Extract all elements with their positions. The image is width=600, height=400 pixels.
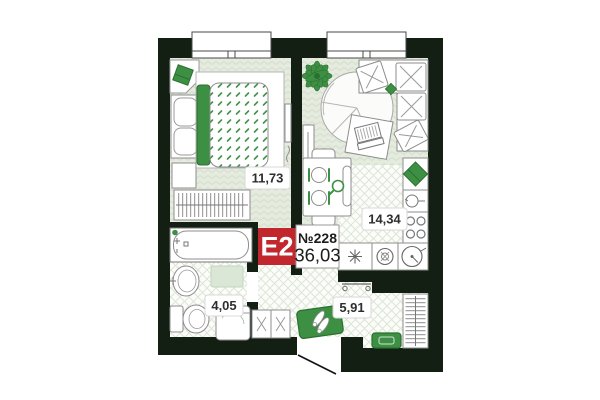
floor-plan-canvas: 11,73 14,34 4,05 5,91 E2 №228 36,03 [0,0,600,400]
open-wardrobe [403,294,428,348]
wall-kitchen-bottom-step [372,280,430,293]
area-label-hallway: 5,91 [333,297,371,318]
dining-table-with-chairs [303,149,351,226]
kitchen-decor-shelf [403,158,428,190]
area-label-bathroom: 4,05 [205,295,243,316]
bath-mat [211,266,243,287]
bench [372,333,401,348]
clothes-rack [174,190,250,220]
hallway-area-value: 5,91 [339,300,364,315]
window-bedroom [192,32,271,58]
wall-bottom-middle [341,337,363,372]
wall-left [158,38,170,355]
floor-plan: 11,73 14,34 4,05 5,91 E2 №228 36,03 [0,0,600,400]
toilet-icon [170,305,209,333]
area-label-kitchen-living: 14,34 [362,208,407,230]
unit-type-value: E2 [260,232,293,262]
teapot-icon [333,181,344,192]
hood-asterisk-icon [348,250,362,264]
shoe-cabinet [252,310,290,338]
bathtub [170,228,252,262]
bath-decor-dot [172,230,178,236]
bed-headboard [197,85,210,165]
wall-bottom-right [363,348,443,372]
bedroom-area-value: 11,73 [252,171,284,186]
entrance-door-swing [298,355,336,374]
wall-right [428,38,443,372]
nightstand [172,163,196,188]
bed-mattress [210,83,268,167]
kitchen-counter [338,243,428,270]
plant-icon [302,61,332,91]
kitchen-living-area-value: 14,34 [368,212,401,227]
unit-total-area-value: 36,03 [294,245,340,266]
unit-badge: E2 №228 36,03 [258,225,341,268]
area-label-bedroom: 11,73 [245,167,290,189]
plate-icon [312,168,327,183]
plate-icon [312,191,327,206]
desk-with-laptop [345,115,393,160]
double-bed [196,72,284,168]
window-living [327,32,406,58]
bathroom-area-value: 4,05 [211,298,236,313]
